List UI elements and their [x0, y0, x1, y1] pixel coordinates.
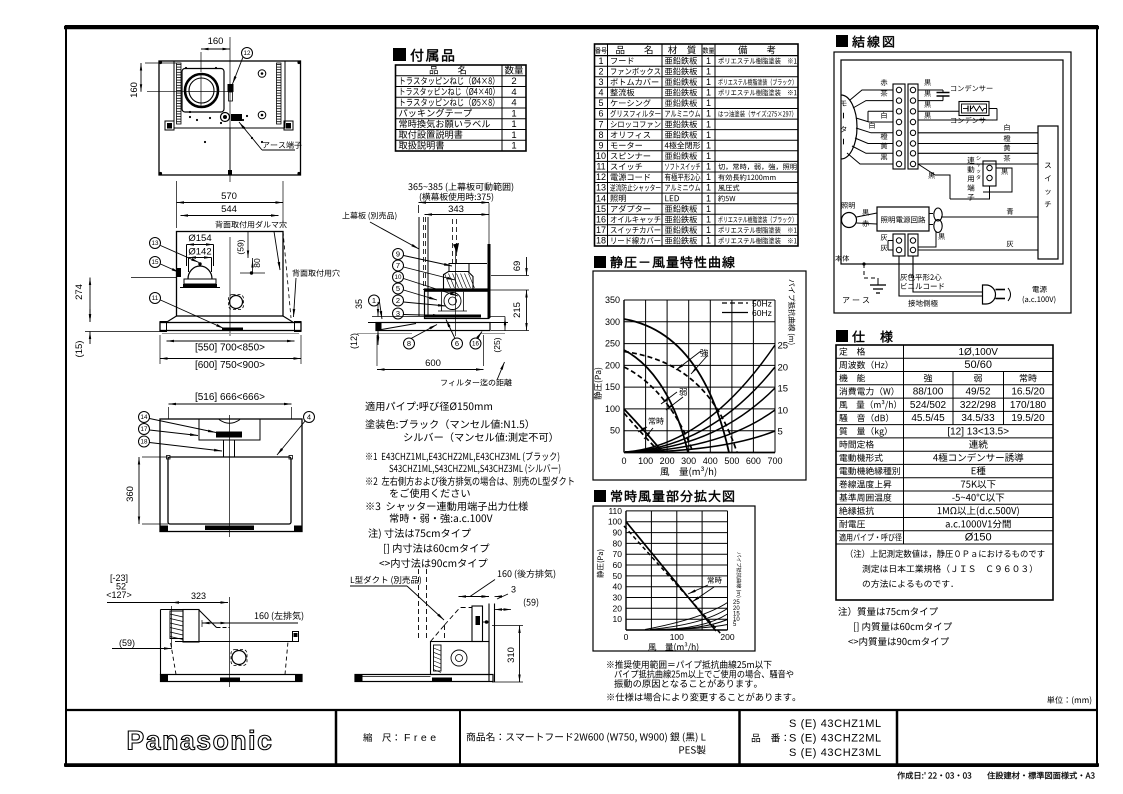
- svg-text:35: 35: [354, 299, 364, 309]
- svg-text:10: 10: [596, 151, 606, 161]
- svg-text:4: 4: [307, 413, 311, 422]
- svg-text:4: 4: [511, 98, 516, 109]
- svg-text:50/60: 50/60: [964, 359, 992, 371]
- svg-text:50: 50: [613, 571, 623, 581]
- svg-text:8: 8: [407, 339, 411, 348]
- svg-text:7: 7: [598, 119, 603, 129]
- svg-text:17: 17: [596, 225, 606, 235]
- svg-text:15: 15: [596, 204, 606, 214]
- svg-text:3: 3: [511, 585, 516, 595]
- svg-text:4: 4: [598, 88, 603, 98]
- svg-text:1: 1: [706, 204, 711, 214]
- svg-text:60Hz: 60Hz: [752, 308, 772, 318]
- svg-text:<127>: <127>: [106, 590, 132, 600]
- svg-text:1: 1: [372, 296, 376, 305]
- svg-text:1: 1: [706, 66, 711, 76]
- svg-text:69: 69: [512, 261, 523, 272]
- svg-text:19.5/20: 19.5/20: [1011, 413, 1045, 424]
- svg-text:1: 1: [511, 119, 516, 130]
- svg-text:215: 215: [512, 302, 523, 318]
- svg-text:88/100: 88/100: [913, 387, 944, 398]
- svg-text:6: 6: [455, 339, 459, 348]
- svg-text:1: 1: [706, 193, 711, 203]
- svg-text:1: 1: [706, 225, 711, 235]
- svg-text:250: 250: [605, 339, 620, 349]
- svg-text:500: 500: [724, 456, 739, 466]
- svg-text:70: 70: [613, 549, 623, 559]
- svg-text:[12] 13<13.5>: [12] 13<13.5>: [947, 427, 1009, 438]
- svg-text:5: 5: [396, 284, 400, 293]
- svg-text:90: 90: [613, 528, 623, 538]
- svg-text:1: 1: [511, 108, 516, 119]
- svg-text:Ø142: Ø142: [188, 247, 211, 258]
- svg-text:50Hz: 50Hz: [752, 299, 772, 309]
- svg-text:110: 110: [608, 506, 622, 516]
- svg-text:1: 1: [706, 183, 711, 193]
- svg-text:13: 13: [152, 240, 159, 247]
- svg-text:15: 15: [152, 259, 159, 266]
- svg-text:1: 1: [511, 130, 516, 141]
- svg-text:1: 1: [706, 140, 711, 150]
- svg-text:200: 200: [660, 456, 675, 466]
- svg-text:Ø154: Ø154: [188, 233, 211, 244]
- svg-text:16: 16: [596, 215, 606, 225]
- svg-text:3: 3: [396, 309, 400, 318]
- svg-text:700: 700: [767, 456, 782, 466]
- svg-text:9: 9: [396, 250, 400, 259]
- svg-text:323: 323: [191, 591, 206, 601]
- svg-text:16: 16: [472, 341, 479, 348]
- svg-text:30: 30: [613, 593, 623, 603]
- svg-text:1: 1: [706, 151, 711, 161]
- svg-text:5: 5: [598, 98, 603, 108]
- svg-text:34.5/33: 34.5/33: [961, 413, 995, 424]
- svg-text:40: 40: [613, 582, 623, 592]
- svg-text:1: 1: [706, 172, 711, 182]
- svg-text:300: 300: [605, 317, 620, 327]
- svg-text:17: 17: [141, 426, 148, 433]
- svg-text:20: 20: [778, 363, 789, 374]
- svg-text:25: 25: [778, 341, 789, 352]
- svg-text:0: 0: [624, 632, 629, 642]
- svg-text:9: 9: [598, 140, 603, 150]
- svg-text:12: 12: [596, 172, 606, 182]
- svg-text:544: 544: [221, 204, 237, 215]
- svg-text:8: 8: [598, 130, 603, 140]
- svg-text:5: 5: [778, 427, 783, 438]
- svg-text:3: 3: [598, 77, 603, 87]
- svg-text:(12): (12): [349, 333, 359, 349]
- svg-text:0: 0: [621, 456, 626, 466]
- svg-text:100: 100: [670, 632, 684, 642]
- svg-text:1: 1: [706, 77, 711, 87]
- svg-text:(59): (59): [236, 239, 246, 254]
- svg-text:Free: Free: [404, 732, 440, 744]
- svg-text:1: 1: [706, 56, 711, 66]
- svg-text:1: 1: [706, 162, 711, 172]
- svg-text:10: 10: [613, 614, 623, 624]
- svg-text:14: 14: [141, 414, 148, 421]
- svg-text:1: 1: [706, 98, 711, 108]
- svg-text:274: 274: [74, 284, 85, 300]
- svg-text:16.5/20: 16.5/20: [1011, 387, 1045, 398]
- svg-text:200: 200: [720, 632, 734, 642]
- svg-text:1Ø,100V: 1Ø,100V: [958, 347, 998, 358]
- svg-text:170/180: 170/180: [1010, 400, 1047, 411]
- svg-text:570: 570: [221, 191, 237, 202]
- svg-text:2: 2: [511, 76, 516, 87]
- svg-text:1: 1: [706, 130, 711, 140]
- svg-text:S (E) 43CHZ2ML: S (E) 43CHZ2ML: [789, 733, 882, 745]
- svg-text:1: 1: [706, 109, 711, 119]
- svg-text:2: 2: [598, 66, 603, 76]
- svg-text:10: 10: [778, 406, 789, 417]
- svg-text:10: 10: [395, 274, 402, 281]
- svg-text:1: 1: [511, 141, 516, 152]
- svg-text:11: 11: [596, 162, 605, 172]
- svg-text:45.5/45: 45.5/45: [911, 413, 945, 424]
- svg-text:12: 12: [244, 50, 251, 57]
- svg-text:(59): (59): [119, 638, 135, 648]
- svg-text:1: 1: [706, 236, 711, 246]
- svg-text:400: 400: [703, 456, 718, 466]
- svg-text:20: 20: [613, 603, 623, 613]
- svg-text:18: 18: [141, 439, 148, 446]
- svg-text:15: 15: [778, 384, 789, 395]
- svg-text:1: 1: [706, 215, 711, 225]
- svg-text:50: 50: [610, 426, 620, 436]
- svg-text:1: 1: [706, 88, 711, 98]
- svg-text:600: 600: [425, 358, 441, 369]
- svg-text:S (E) 43CHZ1ML: S (E) 43CHZ1ML: [789, 718, 882, 730]
- svg-text:1: 1: [598, 56, 603, 66]
- svg-text:1: 1: [706, 119, 711, 129]
- svg-text:Ø150: Ø150: [965, 532, 992, 544]
- svg-text:322/298: 322/298: [960, 400, 997, 411]
- svg-text:100: 100: [605, 404, 620, 414]
- svg-text:[550] 700<850>: [550] 700<850>: [195, 343, 265, 354]
- svg-text:350: 350: [605, 295, 620, 305]
- svg-text:100: 100: [638, 456, 653, 466]
- svg-text:360: 360: [125, 486, 136, 502]
- svg-text:100: 100: [608, 517, 622, 527]
- svg-text:524/502: 524/502: [910, 400, 947, 411]
- svg-text:60: 60: [613, 560, 623, 570]
- svg-text:[516] 666<666>: [516] 666<666>: [195, 392, 265, 403]
- svg-text:(15): (15): [74, 341, 85, 358]
- svg-text:18: 18: [596, 236, 606, 246]
- svg-text:7: 7: [396, 261, 400, 270]
- svg-text:343: 343: [448, 204, 464, 215]
- svg-text:Panasonic: Panasonic: [127, 726, 274, 756]
- svg-text:6: 6: [598, 109, 603, 119]
- svg-text:(25): (25): [492, 337, 502, 352]
- svg-text:160: 160: [208, 36, 224, 47]
- svg-text:11: 11: [152, 295, 159, 302]
- svg-text:S (E) 43CHZ3ML: S (E) 43CHZ3ML: [789, 747, 882, 759]
- svg-text:310: 310: [506, 647, 517, 663]
- svg-text:14: 14: [596, 193, 606, 203]
- svg-text:200: 200: [605, 360, 620, 370]
- svg-text:600: 600: [746, 456, 761, 466]
- svg-text:49/52: 49/52: [965, 387, 990, 398]
- svg-text:4: 4: [511, 87, 516, 98]
- svg-text:2: 2: [396, 296, 400, 305]
- svg-text:160: 160: [129, 82, 140, 98]
- svg-text:80: 80: [613, 538, 623, 548]
- svg-text:[600] 750<900>: [600] 750<900>: [195, 360, 265, 371]
- svg-text:13: 13: [596, 183, 606, 193]
- svg-text:300: 300: [681, 456, 696, 466]
- svg-text:150: 150: [605, 382, 620, 392]
